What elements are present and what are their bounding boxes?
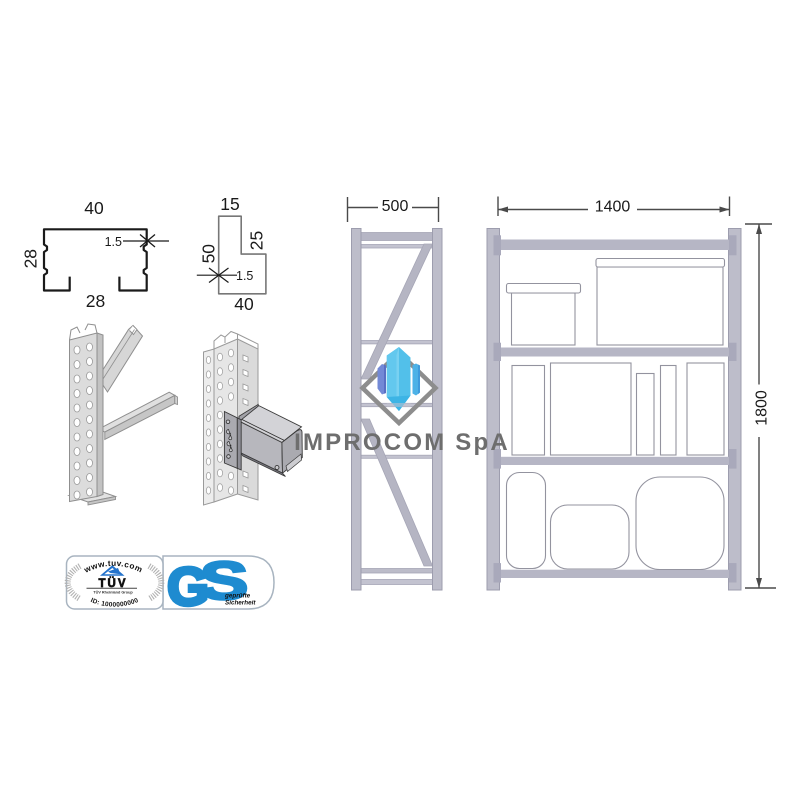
svg-text:50: 50 <box>199 244 219 264</box>
svg-text:1.5: 1.5 <box>105 235 122 249</box>
svg-text:28: 28 <box>86 291 105 311</box>
svg-text:28: 28 <box>21 249 41 268</box>
svg-text:1.5: 1.5 <box>236 269 253 283</box>
svg-text:IMPROCOM SpA: IMPROCOM SpA <box>294 429 510 456</box>
svg-text:40: 40 <box>234 294 254 314</box>
svg-text:TÜV Rheinland Group: TÜV Rheinland Group <box>93 590 133 595</box>
svg-text:1400: 1400 <box>595 199 631 216</box>
svg-text:15: 15 <box>220 194 239 214</box>
svg-text:Sicherheit: Sicherheit <box>225 600 256 607</box>
svg-text:40: 40 <box>84 198 104 218</box>
svg-text:25: 25 <box>247 231 267 250</box>
svg-text:500: 500 <box>382 198 409 215</box>
svg-text:geprüfte: geprüfte <box>224 593 251 600</box>
svg-text:1800: 1800 <box>754 390 771 426</box>
